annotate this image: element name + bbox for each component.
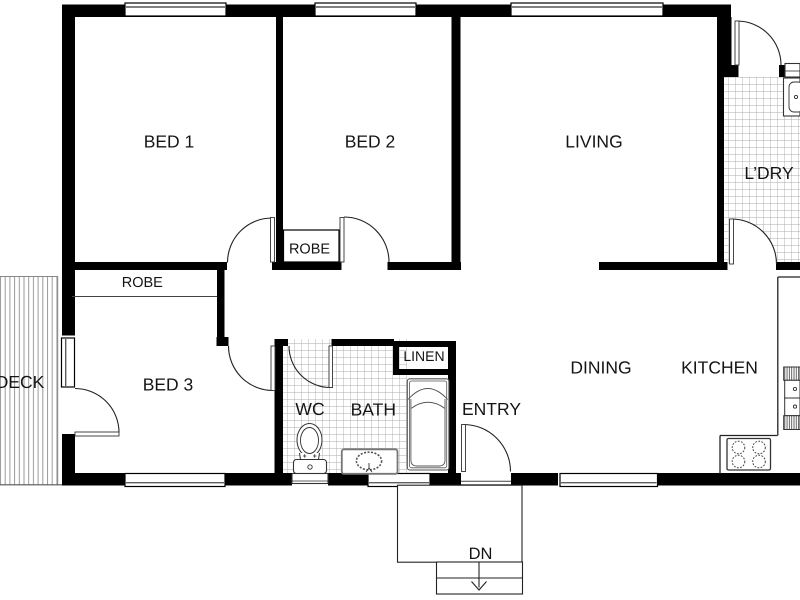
svg-text:LIVING: LIVING (565, 132, 622, 152)
svg-text:BED 2: BED 2 (345, 132, 396, 152)
svg-text:DN: DN (469, 545, 493, 563)
svg-text:WC: WC (295, 399, 324, 419)
svg-text:BATH: BATH (351, 399, 396, 419)
svg-text:ROBE: ROBE (122, 275, 163, 291)
svg-text:ROBE: ROBE (289, 241, 330, 257)
svg-text:L’DRY: L’DRY (744, 163, 794, 183)
svg-text:LINEN: LINEN (403, 348, 444, 364)
svg-text:DINING: DINING (570, 357, 631, 377)
svg-text:ENTRY: ENTRY (462, 399, 521, 419)
svg-text:DECK: DECK (0, 372, 45, 392)
svg-text:BED 3: BED 3 (143, 375, 194, 395)
svg-text:BED 1: BED 1 (144, 132, 195, 152)
svg-text:KITCHEN: KITCHEN (681, 357, 758, 377)
